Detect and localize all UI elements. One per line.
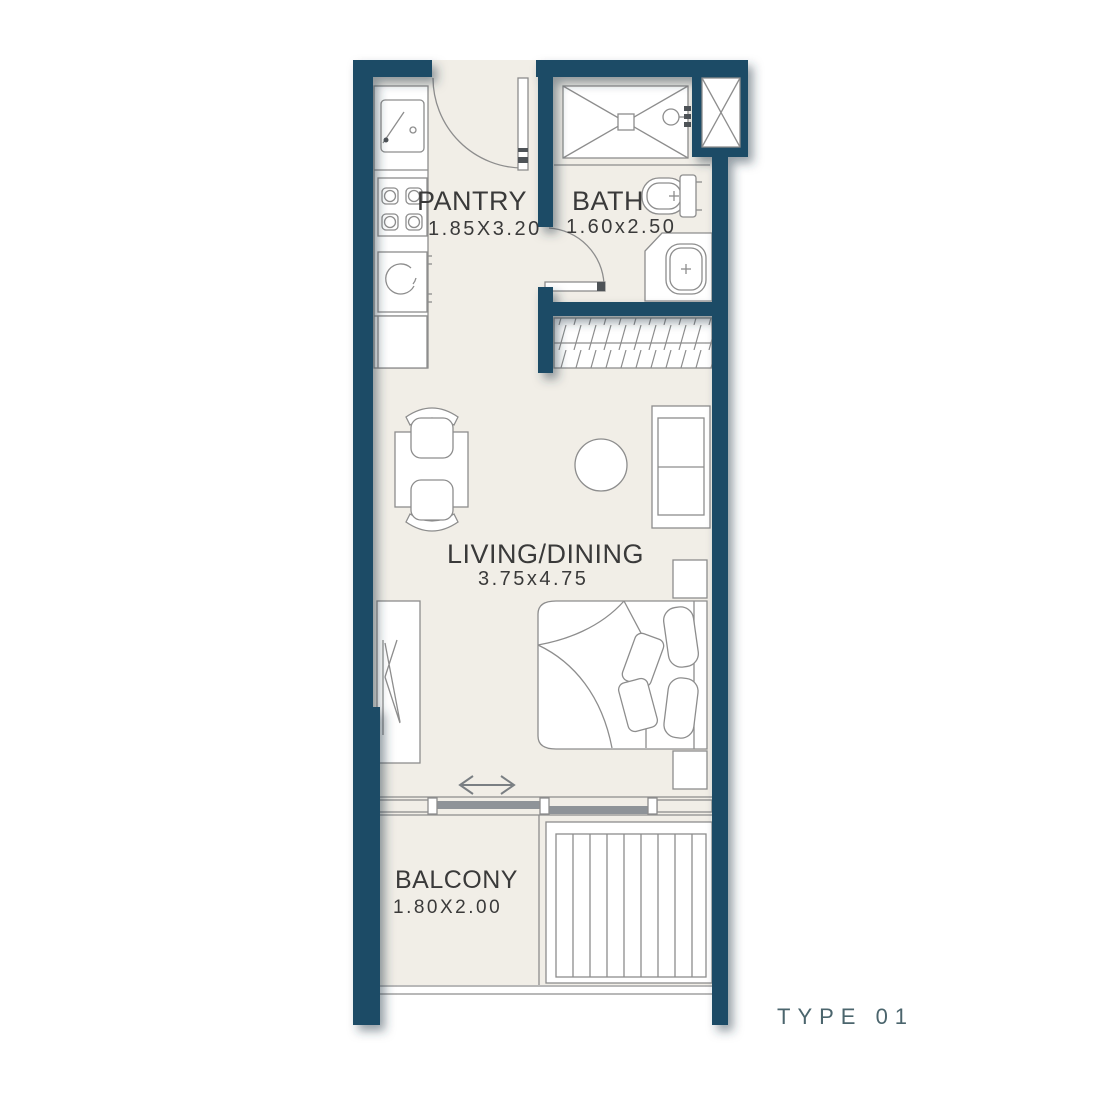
room-dim-pantry: 1.85X3.20 xyxy=(428,218,542,241)
balcony-louver xyxy=(539,815,712,985)
plan-type-label: TYPE 01 xyxy=(777,1004,914,1030)
wardrobe xyxy=(377,601,420,763)
room-dim-balcony: 1.80X2.00 xyxy=(393,897,502,919)
sofa xyxy=(652,406,710,528)
floor-shaft xyxy=(702,78,740,147)
shower xyxy=(554,86,710,165)
toilet xyxy=(642,175,702,217)
room-label-balcony: BALCONY xyxy=(395,866,518,895)
vanity-basin xyxy=(645,233,712,301)
room-dim-bath: 1.60x2.50 xyxy=(566,216,676,239)
closet-hangers xyxy=(554,318,712,368)
balcony-railing xyxy=(373,986,712,994)
room-dim-living-dining: 3.75x4.75 xyxy=(478,568,588,591)
room-label-bath: BATH xyxy=(572,186,644,217)
base-cabinet xyxy=(378,316,427,368)
room-label-pantry: PANTRY xyxy=(417,186,527,217)
room-label-living-dining: LIVING/DINING xyxy=(447,539,644,570)
side-table xyxy=(575,439,627,491)
washing-machine xyxy=(378,252,427,312)
floor-plan: PANTRY 1.85X3.20 BATH 1.60x2.50 LIVING/D… xyxy=(0,0,1100,1100)
kitchen-sink xyxy=(381,100,424,152)
